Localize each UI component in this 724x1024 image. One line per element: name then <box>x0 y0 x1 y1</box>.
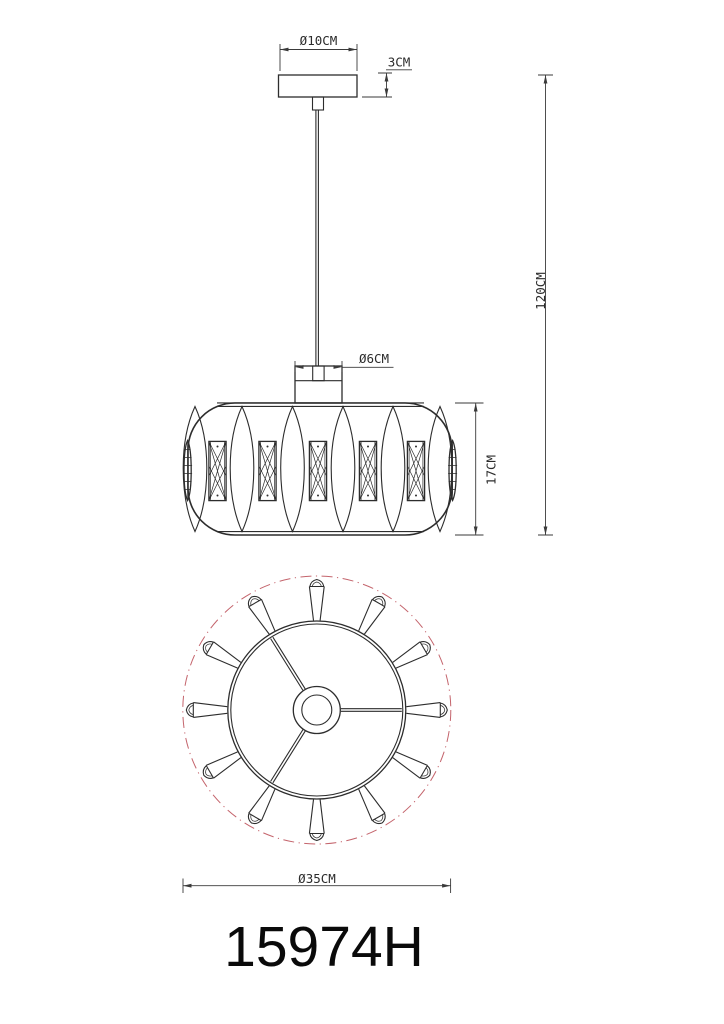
shade-blade <box>428 407 452 532</box>
crystal-panel <box>259 441 276 500</box>
hub-outer-circle <box>293 687 340 734</box>
drum-inner-circle <box>231 624 403 796</box>
ceiling-canopy <box>279 75 358 97</box>
canopy-height-dimension: 3CM <box>362 55 412 98</box>
crystal-panel <box>309 441 326 500</box>
crystal-panel <box>407 441 424 500</box>
shade-silhouette <box>188 403 452 535</box>
suspension-wire <box>316 110 319 366</box>
canopy-diameter-dimension: Ø10CM <box>280 33 357 71</box>
shade-blade <box>381 407 405 532</box>
spider-spokes <box>271 637 402 783</box>
socket-cup <box>295 366 342 403</box>
shade-side-view <box>183 403 457 535</box>
model-number: 15974H <box>224 915 424 979</box>
shade-diameter-label: Ø35CM <box>298 871 336 886</box>
socket-diameter-dimension: Ø6CM <box>295 351 394 372</box>
plan-blades <box>186 580 447 841</box>
shade-blade <box>281 407 305 532</box>
hub-inner-circle <box>302 695 332 725</box>
shade-height-label: 17CM <box>484 455 499 485</box>
total-height-dimension: 120CM <box>533 75 553 535</box>
edge-crystal <box>448 441 457 501</box>
canopy-height-label: 3CM <box>388 55 411 70</box>
shade-diameter-dimension: Ø35CM <box>183 871 451 893</box>
drum-outer-circle <box>228 621 406 799</box>
shade-blade <box>230 407 254 532</box>
shade-height-dimension: 17CM <box>455 403 499 535</box>
canopy-diameter-label: Ø10CM <box>300 33 338 48</box>
technical-drawing-page: Ø10CM 3CM 120CM Ø6CM <box>0 0 724 1024</box>
crystal-panel <box>359 441 376 500</box>
total-height-label: 120CM <box>533 272 548 310</box>
pendant-lamp-drawing: Ø10CM 3CM 120CM Ø6CM <box>0 0 724 1024</box>
shade-blade <box>331 407 355 532</box>
canopy-cord-grip <box>313 97 324 110</box>
socket-diameter-label: Ø6CM <box>359 351 389 366</box>
outer-diameter-dashed-circle <box>183 576 451 844</box>
crystal-panel <box>209 441 226 500</box>
shade-plan-view <box>183 576 451 844</box>
